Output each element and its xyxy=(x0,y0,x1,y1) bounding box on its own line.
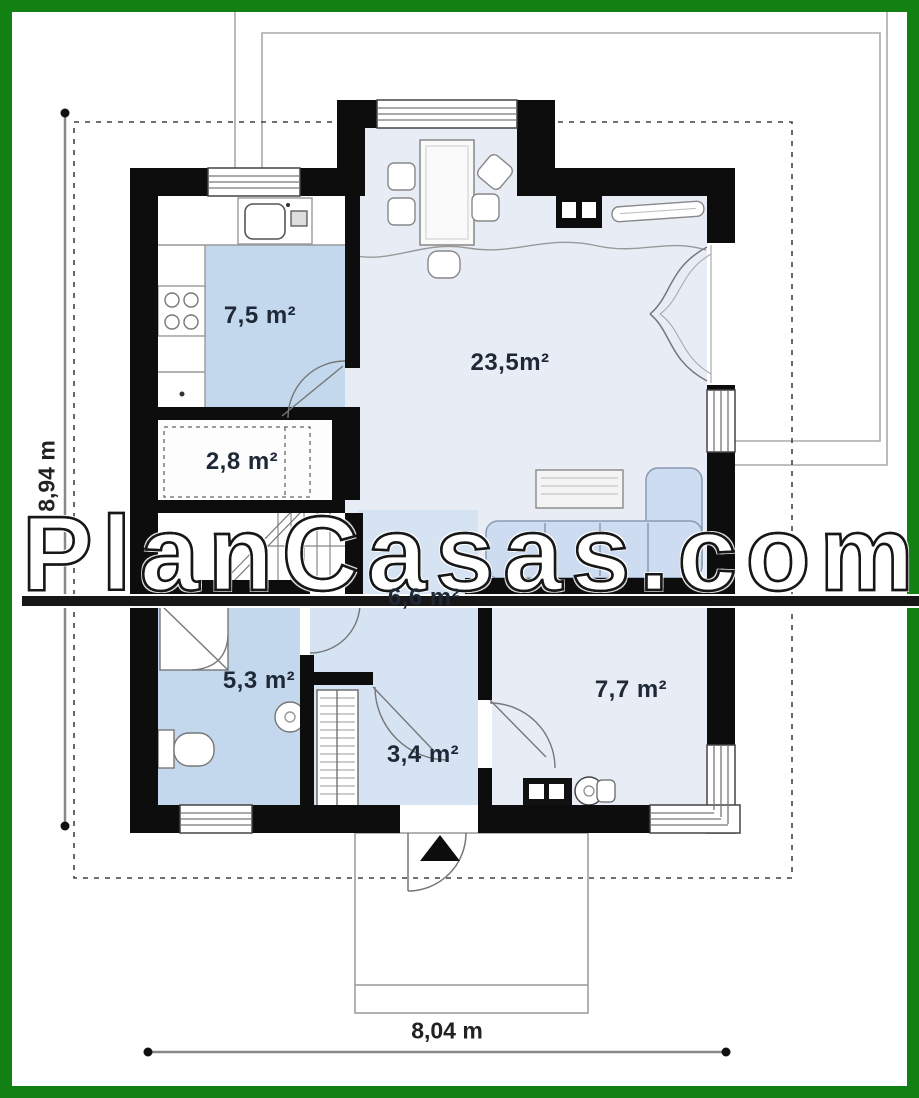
vertical-dimension-line xyxy=(61,109,70,831)
dining-window xyxy=(377,100,517,128)
bathroom-window xyxy=(180,805,252,833)
bathroom-area-label: 5,3 m² xyxy=(223,667,295,695)
entry-area-label: 3,4 m² xyxy=(387,741,459,769)
porch-outline xyxy=(355,833,588,1013)
stove xyxy=(158,286,205,336)
fireplace xyxy=(556,196,602,228)
horizontal-dimension-line xyxy=(144,1048,731,1057)
floor-plan-image: PlanCasas.com 7,5 m² 23,5m² 2,8 m² 6,6 m… xyxy=(0,0,919,1098)
living-dining-area-label: 23,5m² xyxy=(470,349,549,377)
vertical-dimension-label: 8,94 m xyxy=(34,440,61,512)
bedroom-area-label: 7,7 m² xyxy=(595,676,667,704)
pantry-area-label: 2,8 m² xyxy=(206,448,278,476)
entrance-arrow-icon xyxy=(420,835,460,861)
dining-table xyxy=(420,140,474,245)
bedroom-dresser xyxy=(523,777,615,806)
entry-wardrobe xyxy=(317,690,358,807)
cabinet-handle-dot xyxy=(180,392,185,397)
watermark-text: PlanCasas.com xyxy=(22,494,919,615)
horizontal-dimension-label: 8,04 m xyxy=(411,1018,483,1045)
toilet xyxy=(158,730,214,768)
kitchen-area-label: 7,5 m² xyxy=(224,302,296,330)
hall-area-label: 6,6 m² xyxy=(388,584,460,612)
kitchen-window xyxy=(208,168,300,196)
living-side-window xyxy=(707,390,735,452)
kitchen-sink xyxy=(238,198,312,244)
